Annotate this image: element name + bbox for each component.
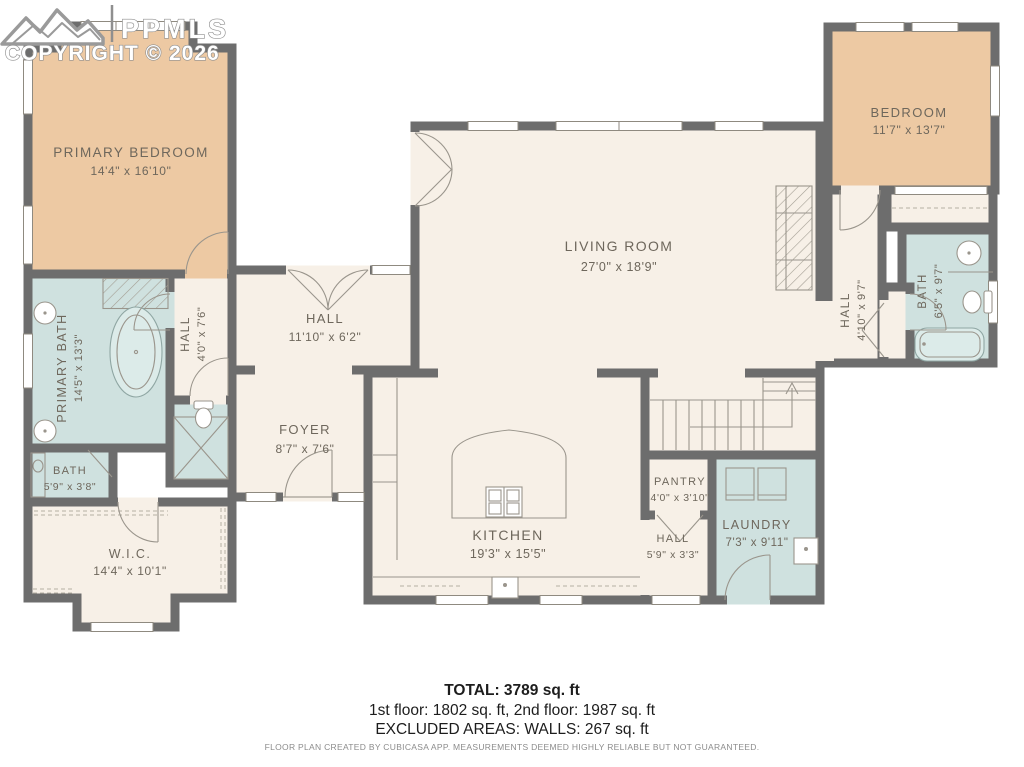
window <box>24 206 33 264</box>
window <box>540 596 582 605</box>
bath-right-toilet <box>963 291 992 313</box>
room-dims: 4'10" x 9'7" <box>856 279 868 340</box>
kitchen-sink <box>492 577 518 598</box>
window <box>912 23 958 32</box>
room-label: HALL <box>838 292 852 328</box>
window <box>91 623 153 632</box>
room-label: PRIMARY BATH <box>55 313 69 422</box>
room-label: LAUNDRY <box>722 518 791 532</box>
room-label: PRIMARY BEDROOM <box>53 145 209 160</box>
window <box>24 334 33 388</box>
summary-excluded: EXCLUDED AREAS: WALLS: 267 sq. ft <box>375 721 649 738</box>
room-label: BATH <box>53 465 87 477</box>
soaking-tub <box>110 307 162 397</box>
shower-hatch <box>103 279 168 309</box>
room-dims: 7'3" x 9'11" <box>725 537 788 549</box>
window <box>468 122 518 131</box>
room-label: BATH <box>917 273 929 308</box>
window <box>715 122 763 131</box>
sink-drain <box>43 311 46 314</box>
room-label: W.I.C. <box>109 547 151 561</box>
cooktop <box>486 487 522 517</box>
window <box>436 596 488 605</box>
summary-total: TOTAL: 3789 sq. ft <box>444 682 580 699</box>
room-dims: 14'5" x 13'3" <box>73 334 85 402</box>
room-dims: 14'4" x 16'10" <box>91 164 172 178</box>
window <box>856 23 904 32</box>
room-label: HALL <box>306 311 344 326</box>
room-label: HALL <box>178 316 192 352</box>
watermark-brand: PPMLS <box>121 14 229 44</box>
bathtub <box>915 328 984 361</box>
room-label: LIVING ROOM <box>565 238 674 254</box>
watermark-copyright: COPYRIGHT © 2026 <box>5 42 220 65</box>
room-dims: 5'9" x 3'3" <box>647 549 700 561</box>
toilet <box>194 401 213 428</box>
room-label: BEDROOM <box>871 105 948 120</box>
room-dims: 11'10" x 6'2" <box>289 330 362 344</box>
room-dims: 8'7" x 7'6" <box>275 442 334 456</box>
window <box>338 493 364 502</box>
room-dims: 5'9" x 3'8" <box>44 481 97 493</box>
room-label: FOYER <box>279 422 331 437</box>
window <box>991 66 1000 116</box>
window <box>372 266 410 275</box>
summary-floors: 1st floor: 1802 sq. ft, 2nd floor: 1987 … <box>369 702 656 719</box>
summary-block: TOTAL: 3789 sq. ft 1st floor: 1802 sq. f… <box>265 682 760 752</box>
room-dims: 6'5" x 9'7" <box>933 264 945 319</box>
room-dims: 11'7" x 13'7" <box>873 123 946 137</box>
fireplace <box>776 186 812 290</box>
room-dims: 27'0" x 18'9" <box>581 260 657 274</box>
room-dims: 4'0" x 7'6" <box>196 307 208 362</box>
room-label: PANTRY <box>654 476 706 488</box>
sink-drain <box>43 429 46 432</box>
room-dims: 14'4" x 10'1" <box>93 564 167 578</box>
closet-sliders <box>895 187 987 195</box>
window <box>24 60 33 114</box>
room-dims: 4'0" x 3'10" <box>651 492 710 504</box>
room-label: HALL <box>656 533 689 545</box>
floor-plan-page: PRIMARY BEDROOM 14'4" x 16'10" PRIMARY B… <box>0 0 1024 767</box>
room-dims: 19'3" x 15'5" <box>470 547 546 561</box>
laundry-sink <box>794 538 818 564</box>
room-label: KITCHEN <box>472 527 543 543</box>
window <box>246 493 276 502</box>
room-hall-right <box>828 190 882 363</box>
summary-disclaimer: FLOOR PLAN CREATED BY CUBICASA APP. MEAS… <box>265 742 760 752</box>
window <box>652 596 700 605</box>
floor-plan-canvas: PRIMARY BEDROOM 14'4" x 16'10" PRIMARY B… <box>0 0 1024 767</box>
